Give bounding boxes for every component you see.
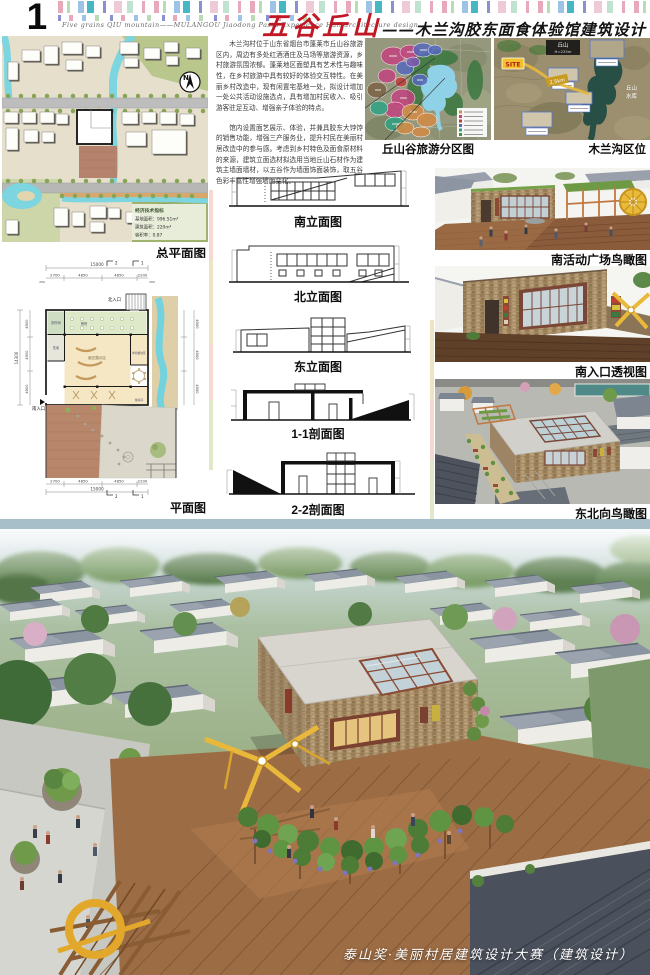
section-2-2-drawing bbox=[219, 448, 417, 500]
location-map: 丘山 水库 丘山 H=225m 2.5km SITE bbox=[494, 38, 650, 140]
svg-text:4500: 4500 bbox=[25, 319, 29, 329]
south-entrance-label: 南入口 bbox=[32, 405, 45, 412]
svg-text:14300: 14300 bbox=[14, 351, 19, 364]
hero-aerial-render bbox=[0, 529, 650, 975]
svg-text:2700: 2700 bbox=[50, 479, 60, 484]
svg-text:经济技术指标: 经济技术指标 bbox=[135, 207, 164, 214]
svg-text:4850: 4850 bbox=[78, 479, 88, 484]
svg-text:4850: 4850 bbox=[78, 273, 88, 278]
svg-text:丘山: 丘山 bbox=[557, 41, 568, 49]
svg-text:N: N bbox=[183, 74, 189, 82]
render-south-plaza bbox=[435, 168, 650, 250]
poster-page: 01 Five grains QIU mountain——MULANGOU Ji… bbox=[0, 0, 650, 975]
render-northeast-aerial bbox=[435, 379, 650, 504]
north-arrow-icon: N bbox=[180, 72, 200, 92]
section-1-1-drawing bbox=[219, 380, 417, 424]
accent-strip-right bbox=[430, 320, 434, 520]
map-legend bbox=[457, 108, 487, 137]
north-elevation-drawing bbox=[219, 236, 417, 288]
title-black: ——木兰沟胶东面食体验馆建筑设计 bbox=[382, 18, 646, 40]
room-label: 体验餐饮区 bbox=[132, 351, 146, 355]
title-red: 五谷丘山 bbox=[262, 6, 382, 43]
svg-text:4500: 4500 bbox=[195, 384, 199, 394]
section-1-1-label: 1-1剖面图 bbox=[213, 425, 423, 442]
reservoir-label: 丘山 bbox=[626, 84, 637, 92]
peak-label: 丘山 H=225m bbox=[546, 40, 580, 55]
svg-text:4850: 4850 bbox=[114, 273, 124, 278]
north-entrance-label: 北入口 bbox=[108, 296, 121, 303]
economic-indicators: 经济技术指标 基地面积：996.51m² 建筑面积：220m² 容积率：0.87 bbox=[132, 204, 206, 240]
svg-text:2200: 2200 bbox=[138, 273, 148, 278]
svg-text:H=225m: H=225m bbox=[555, 49, 572, 54]
site-marker: SITE bbox=[502, 58, 524, 69]
north-elevation-label: 北立面图 bbox=[213, 288, 423, 305]
zoning-map bbox=[365, 38, 491, 140]
south-elevation-label: 南立面图 bbox=[213, 213, 423, 230]
site-plaza bbox=[79, 146, 117, 178]
floor-plan-drawing: 北入口 制作间 售卖 餐吧 面艺展示区 体验餐饮区 餐具间 南入口 bbox=[6, 258, 208, 498]
svg-text:基地面积：996.51m²: 基地面积：996.51m² bbox=[135, 216, 179, 223]
section-2-2-label: 2-2剖面图 bbox=[213, 501, 423, 518]
stair bbox=[126, 294, 146, 310]
svg-text:15000: 15000 bbox=[90, 487, 104, 492]
svg-text:4900: 4900 bbox=[25, 350, 29, 360]
svg-text:水库: 水库 bbox=[626, 92, 638, 100]
competition-footer: 泰山奖·美丽村居建筑设计大赛（建筑设计） bbox=[294, 944, 634, 963]
site-building-footprint bbox=[77, 110, 112, 144]
room-label: 面艺展示区 bbox=[88, 355, 106, 360]
svg-text:2200: 2200 bbox=[138, 479, 148, 484]
room-label: 餐吧 bbox=[81, 321, 88, 326]
intro-paragraph-1: 木兰沟村位于山东省烟台市蓬莱市丘山谷旅游区内，周边有多处红酒酒庄及马场等旅游资源… bbox=[216, 40, 363, 115]
svg-text:2700: 2700 bbox=[50, 273, 60, 278]
svg-text:SITE: SITE bbox=[505, 62, 520, 69]
site-plan-drawing: N 经济技术指标 基地面积：996.51m² 建筑面积：220m² 容积率：0.… bbox=[2, 36, 208, 242]
page-number: 01 bbox=[8, 0, 45, 38]
floor-plan-label: 平面图 bbox=[110, 499, 206, 516]
room-label: 售卖 bbox=[53, 345, 60, 350]
south-elevation-drawing bbox=[219, 166, 417, 212]
svg-text:15000: 15000 bbox=[90, 262, 104, 267]
svg-text:200: 200 bbox=[39, 280, 45, 284]
section-divider bbox=[0, 519, 650, 529]
svg-text:4500: 4500 bbox=[195, 319, 199, 329]
render2-label: 南入口透视图 bbox=[435, 363, 647, 380]
room-label: 制作间 bbox=[51, 320, 61, 325]
svg-text:4900: 4900 bbox=[195, 350, 199, 360]
east-elevation-label: 东立面图 bbox=[213, 358, 423, 375]
room-label: 餐具间 bbox=[135, 398, 143, 402]
svg-text:4850: 4850 bbox=[114, 479, 124, 484]
zoning-map-label: 丘山谷旅游分区图 bbox=[365, 141, 491, 157]
svg-text:容积率：0.87: 容积率：0.87 bbox=[135, 232, 163, 239]
location-map-label: 木兰沟区位 bbox=[500, 141, 646, 157]
east-elevation-drawing bbox=[219, 312, 417, 358]
svg-text:200: 200 bbox=[149, 280, 155, 284]
svg-text:建筑面积：220m²: 建筑面积：220m² bbox=[135, 224, 172, 231]
render-south-entrance bbox=[435, 266, 650, 362]
svg-text:4500: 4500 bbox=[25, 384, 29, 394]
